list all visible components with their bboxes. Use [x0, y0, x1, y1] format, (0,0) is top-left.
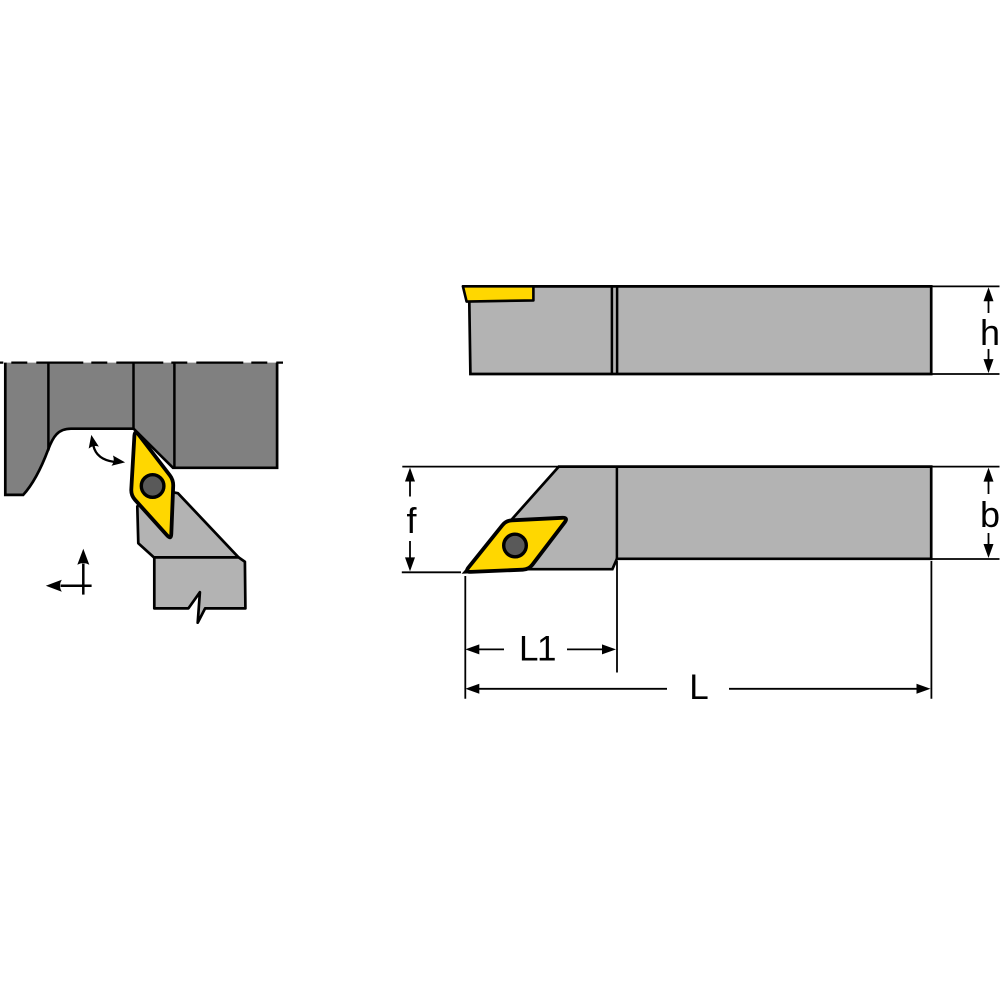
svg-text:f: f — [406, 500, 417, 541]
svg-text:b: b — [980, 494, 1000, 535]
svg-text:h: h — [980, 312, 1000, 353]
svg-text:L: L — [689, 668, 708, 707]
svg-text:L1: L1 — [519, 630, 555, 669]
